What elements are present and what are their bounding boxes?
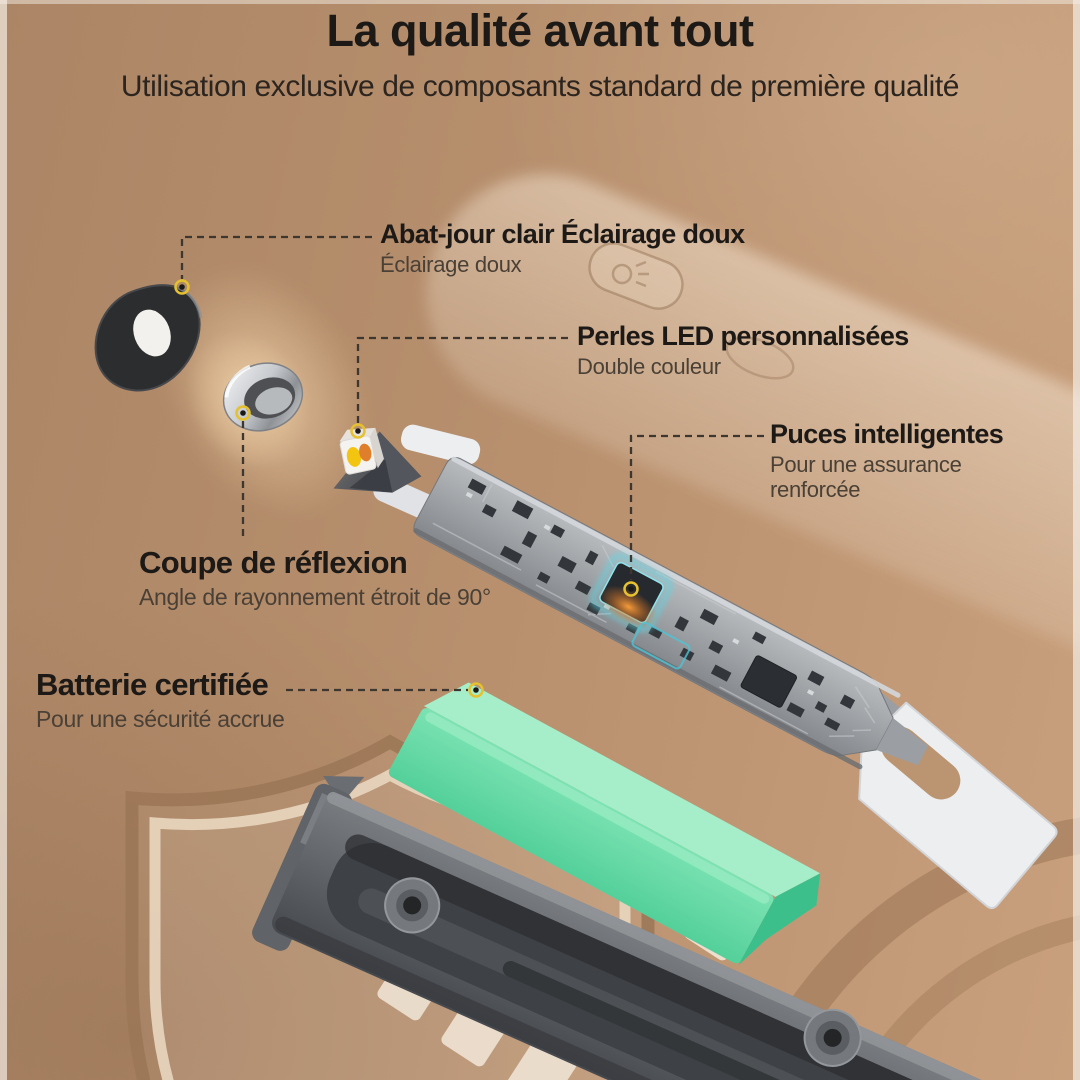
- callout-sublabel: Pour une assurance renforcée: [770, 453, 1008, 502]
- callout-line-puces: [631, 436, 764, 580]
- infographic-canvas: La qualité avant tout Utilisation exclus…: [0, 0, 1080, 1080]
- page-title: La qualité avant tout: [0, 5, 1080, 57]
- callout-batterie: Batterie certifiée Pour une sécurité acc…: [36, 668, 285, 732]
- top-photo-edge: [0, 0, 1080, 4]
- page-subtitle: Utilisation exclusive de composants stan…: [0, 70, 1080, 104]
- callout-label: Abat-jour clair Éclairage doux: [380, 219, 745, 249]
- callout-puces: Puces intelligentes Pour une assurance r…: [770, 419, 1008, 502]
- callout-label: Coupe de réflexion: [139, 546, 491, 581]
- callout-line-perles-led: [358, 338, 568, 423]
- callout-abat-jour: Abat-jour clair Éclairage doux Éclairage…: [380, 219, 745, 278]
- callout-coupe: Coupe de réflexion Angle de rayonnement …: [139, 546, 491, 610]
- callout-label: Batterie certifiée: [36, 668, 285, 703]
- callout-label: Puces intelligentes: [770, 419, 1008, 449]
- callout-sublabel: Éclairage doux: [380, 253, 745, 278]
- callout-sublabel: Pour une sécurité accrue: [36, 707, 285, 733]
- callout-sublabel: Angle de rayonnement étroit de 90°: [139, 585, 491, 611]
- callout-label: Perles LED personnalisées: [577, 321, 909, 351]
- callout-sublabel: Double couleur: [577, 355, 909, 380]
- left-photo-edge: [0, 0, 7, 1080]
- exploded-view-graphic: [0, 0, 1080, 1080]
- right-photo-edge: [1073, 0, 1080, 1080]
- callout-perles-led: Perles LED personnalisées Double couleur: [577, 321, 909, 380]
